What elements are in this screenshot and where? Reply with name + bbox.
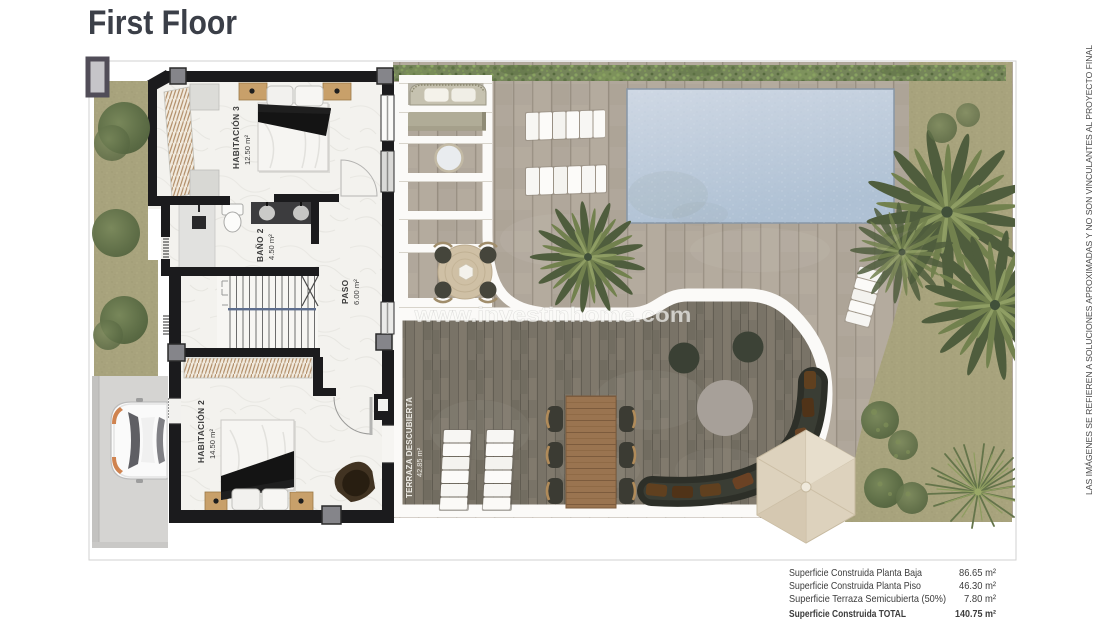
svg-text:7.80 m²: 7.80 m² [964,594,997,605]
svg-text:www.investinhome.com: www.investinhome.com [413,304,691,327]
svg-text:Superficie Construida Planta B: Superficie Construida Planta Baja [789,568,922,579]
svg-text:4.50 m²: 4.50 m² [267,234,276,260]
svg-text:6.00 m²: 6.00 m² [352,279,361,305]
svg-text:HABITACIÓN 3: HABITACIÓN 3 [230,106,241,169]
svg-text:TERRAZA DESCUBIERTA: TERRAZA DESCUBIERTA [405,397,414,498]
svg-text:42.85 m²: 42.85 m² [415,447,424,477]
svg-text:LAS IMÁGENES SE REFIEREN A SOL: LAS IMÁGENES SE REFIEREN A SOLUCIONES AP… [1085,44,1094,495]
svg-text:Superficie Terraza Semicubiert: Superficie Terraza Semicubierta (50%) [789,594,946,605]
svg-text:Superficie Construida Planta P: Superficie Construida Planta Piso [789,581,921,592]
svg-text:46.30 m²: 46.30 m² [959,581,997,592]
svg-text:14.50 m²: 14.50 m² [208,429,217,459]
svg-text:86.65 m²: 86.65 m² [959,568,997,579]
svg-text:Superficie Construida TOTAL: Superficie Construida TOTAL [789,609,906,620]
svg-text:First Floor: First Floor [88,4,237,42]
svg-text:HABITACIÓN 2: HABITACIÓN 2 [195,400,206,463]
svg-text:140.75 m²: 140.75 m² [955,609,996,620]
svg-text:12.50 m²: 12.50 m² [243,135,252,165]
svg-text:PASO: PASO [340,279,350,304]
svg-text:BAÑO 2: BAÑO 2 [255,228,265,262]
